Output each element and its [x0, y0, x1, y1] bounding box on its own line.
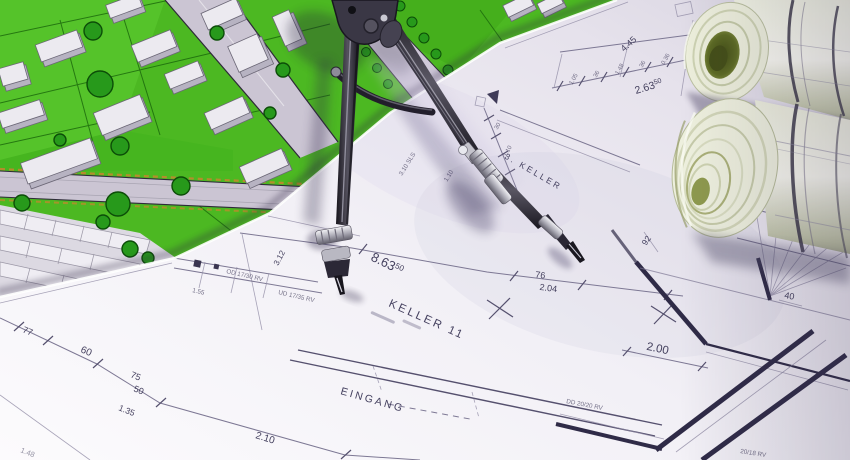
dim-2-04: 2.04 — [539, 282, 558, 294]
photo-blueprints-scene: KELLER 11 3. KELLER EINGANG 8.6350 2.635… — [0, 0, 850, 460]
scene-photo: KELLER 11 3. KELLER EINGANG 8.6350 2.635… — [0, 0, 850, 460]
vignette-right — [680, 0, 850, 460]
dim-76: 76 — [535, 269, 546, 280]
